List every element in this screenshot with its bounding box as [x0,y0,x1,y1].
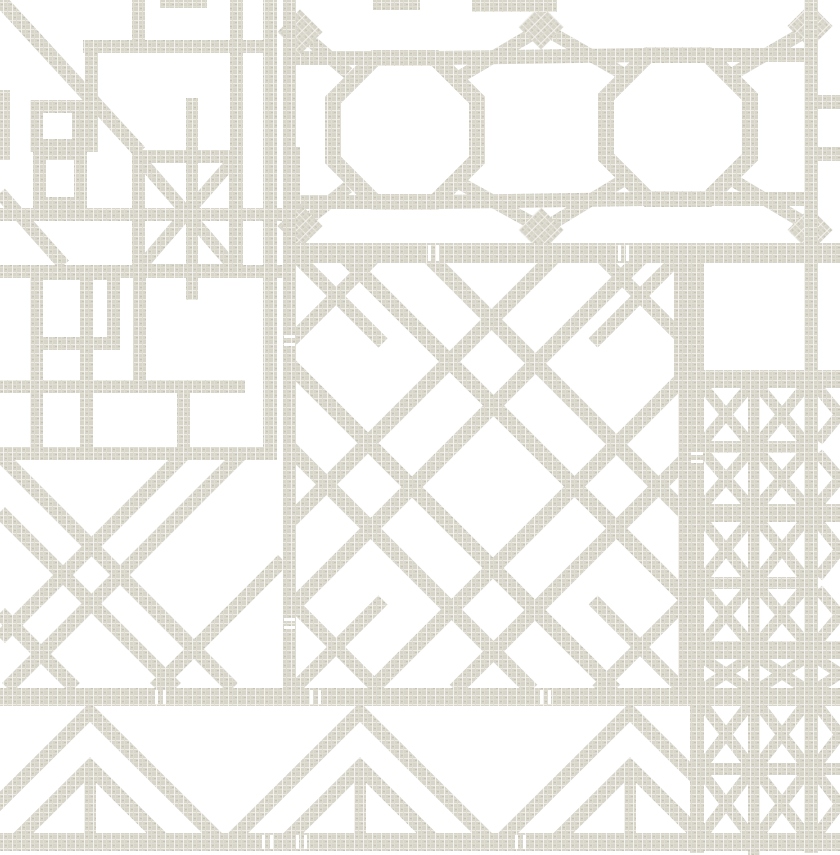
joint-slit [262,835,265,849]
joint-slit [428,245,431,261]
trellis-pattern-image [0,0,840,855]
x-lattice-divider [704,577,804,589]
fret-upright [263,0,277,460]
joint-slit [691,460,703,463]
joint-slit [626,245,629,261]
bamboo-rail-bottom [0,833,840,851]
fret-upright [132,0,145,53]
octagon-link-strip [435,55,648,58]
x-lattice-rail [704,370,840,388]
joint-slit [304,835,307,849]
joint-slit [318,690,321,704]
bamboo-rail-lower [0,688,840,706]
band-edge-stub [373,0,420,10]
joint-slit [270,835,273,849]
band-edge-rung [818,95,840,109]
fret-edge-stub [160,0,207,8]
x-lattice-divider [704,763,840,775]
bamboo-rail-octagon-bottom [283,243,840,263]
joint-slit [155,690,158,704]
fret-upright [85,40,98,152]
fret-upright [177,393,190,460]
joint-slit [284,618,295,621]
joint-slit [284,343,295,346]
joint-slit [540,690,543,704]
fret-edge-stub [0,90,10,160]
joint-slit [310,690,313,704]
joint-slit [296,835,299,849]
trellis-wallpaper-swatch [0,0,840,855]
joint-slit [523,835,526,849]
bamboo-rail-xcol-left [690,243,704,853]
joint-slit [284,335,295,338]
joint-slit [515,835,518,849]
fret-upright [80,267,93,460]
bamboo-rail-vertical-divider [283,0,296,706]
joint-slit [548,690,551,704]
octagon-link-strip [435,199,648,202]
band-edge-rung [818,147,840,161]
joint-slit [618,245,621,261]
bamboo-rail-right-edge [804,0,818,853]
band-edge-stub [472,0,557,12]
joint-slit [691,452,703,455]
fret-upright [133,277,146,393]
x-lattice-divider [704,441,804,453]
joint-slit [436,245,439,261]
joint-slit [284,626,295,629]
bamboo-rail-diamond-right [678,253,692,690]
joint-slit [163,690,166,704]
